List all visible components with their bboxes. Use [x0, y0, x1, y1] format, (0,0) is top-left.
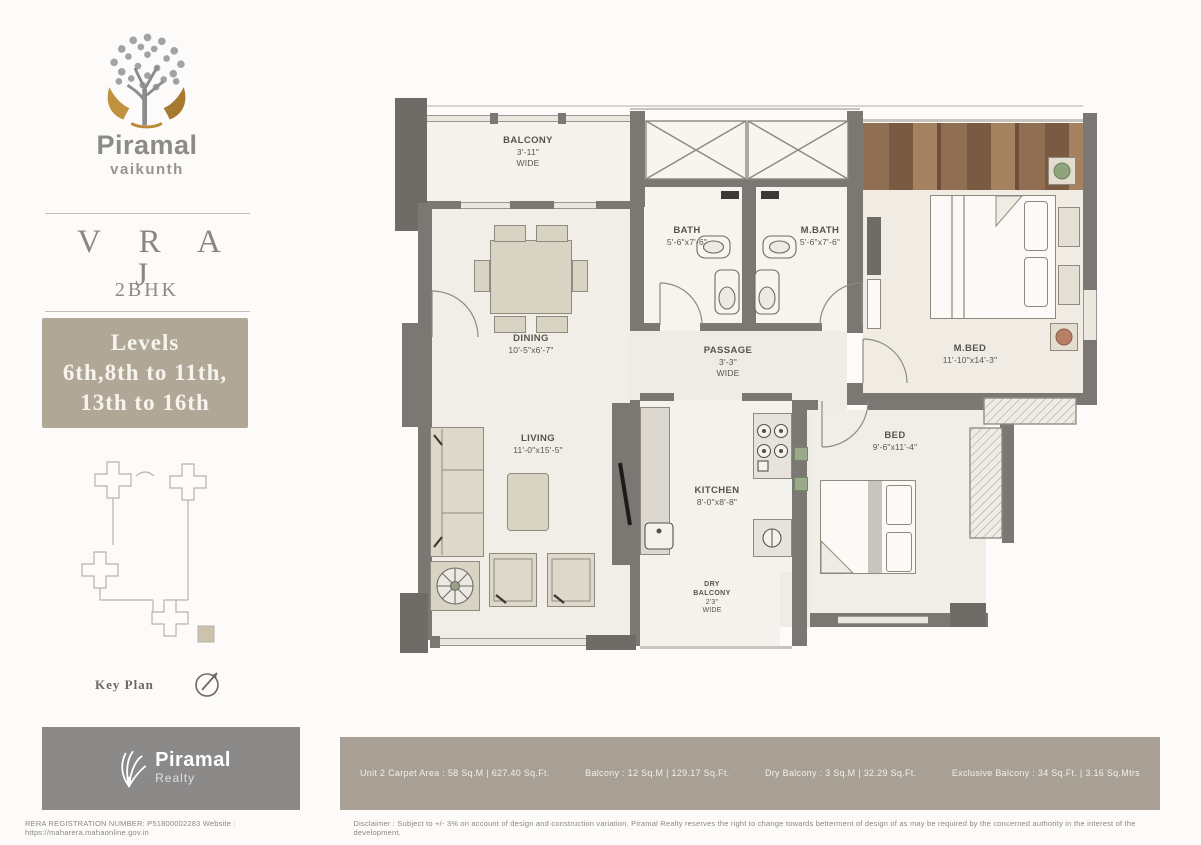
key-plan-label: Key Plan — [95, 678, 154, 691]
dining-table — [490, 240, 572, 314]
tree-icon — [95, 26, 200, 131]
wall-segment — [510, 201, 554, 209]
piramal-realty-logo-box: Piramal Realty — [42, 727, 300, 810]
wall-segment — [700, 323, 822, 331]
room-label-dining: DINING10'-5"x6'-7" — [508, 333, 553, 356]
master-bed-window — [1083, 290, 1097, 340]
levels-line3: 13th to 16th — [42, 388, 248, 418]
area-segment: Dry Balcony : 3 Sq.M | 32.29 Sq.Ft. — [765, 768, 916, 779]
brand-name: Piramal — [42, 132, 252, 159]
divider-top — [45, 213, 250, 214]
area-segment: Unit 2 Carpet Area : 58 Sq.M | 627.40 Sq… — [360, 768, 550, 779]
room-label-kitchen: KITCHEN8'-0"x8'-8" — [694, 485, 739, 508]
armchair — [547, 553, 595, 607]
pillow — [886, 532, 912, 572]
duct-top-line — [630, 108, 860, 110]
wall-segment — [430, 636, 440, 648]
room-label-passage: PASSAGE3'-3"WIDE — [704, 345, 753, 379]
brochure-page: Piramal vaikunth V R A J 2BHK Levels 6th… — [0, 0, 1201, 845]
floor-plan: BALCONY3'-11"WIDE BATH5'-6"x7'-6" M.BATH… — [390, 95, 1100, 685]
nightstand — [1058, 207, 1080, 247]
bath-divider-wall — [742, 185, 756, 331]
kitchen-living-divider — [612, 403, 640, 565]
room-label-bed: BED9'-6"x11'-4" — [873, 430, 918, 453]
pillow — [1024, 257, 1048, 307]
bed-window — [838, 616, 928, 624]
piramal-vaikunth-tree-logo — [95, 26, 200, 131]
bed-runner — [868, 481, 882, 573]
realty-brand-sub: Realty — [155, 770, 231, 787]
bath-floor — [630, 185, 847, 331]
dining-chair — [536, 316, 568, 333]
bath-left-wall — [630, 179, 644, 331]
bed-top-wall — [868, 400, 984, 410]
wall-segment — [596, 201, 630, 209]
plan-type: 2BHK — [42, 280, 252, 300]
divider-bottom — [45, 311, 250, 312]
utility-fixture — [794, 477, 808, 491]
nightstand — [1058, 265, 1080, 305]
wall-segment — [490, 113, 498, 124]
dining-chair — [572, 260, 588, 292]
balcony-window — [427, 115, 630, 122]
room-label-dry-balcony: DRYBALCONY 2'3"WIDE — [693, 581, 730, 616]
coffee-table — [507, 473, 549, 531]
realty-brand-name: Piramal — [155, 750, 231, 770]
wall-segment — [558, 113, 566, 124]
wall-segment — [742, 393, 792, 401]
wall-segment — [1000, 405, 1014, 433]
levels-box: Levels 6th,8th to 11th, 13th to 16th — [42, 318, 248, 428]
side-table — [430, 561, 480, 611]
wall-segment — [586, 635, 636, 650]
kitchen-right-wall — [792, 400, 807, 646]
room-label-bath: BATH5'-6"x7'-6" — [667, 225, 707, 248]
wall-segment — [400, 593, 428, 653]
dining-chair — [536, 225, 568, 242]
disclaimer-text: Disclaimer : Subject to +/- 3% on accoun… — [354, 819, 1165, 837]
kitchen-stove — [753, 413, 792, 479]
key-plan-drawing — [58, 450, 233, 665]
master-bed-dresser — [867, 279, 881, 329]
area-summary-bar: Unit 2 Carpet Area : 58 Sq.M | 627.40 Sq… — [340, 737, 1160, 810]
realty-hand-icon — [111, 747, 147, 791]
dining-chair — [494, 225, 526, 242]
wall-segment — [640, 393, 674, 401]
north-compass-icon — [193, 666, 225, 700]
kitchen-counter — [640, 407, 670, 555]
room-label-balcony: BALCONY3'-11"WIDE — [503, 135, 553, 169]
levels-line2: 6th,8th to 11th, — [42, 358, 248, 388]
wall-segment — [950, 603, 986, 627]
wall-segment — [427, 201, 461, 209]
planter — [1050, 323, 1078, 351]
pillow — [886, 485, 912, 525]
slab-edge-line — [427, 105, 1083, 107]
wall-segment — [402, 323, 418, 427]
utility-fixture — [794, 447, 808, 461]
golden-hand-right — [164, 87, 186, 119]
sofa — [430, 427, 484, 557]
wall-segment — [644, 323, 660, 331]
master-bed-right-wall — [1083, 113, 1097, 405]
bed-right-wall — [1002, 431, 1014, 543]
golden-hand-left — [108, 87, 130, 119]
pillow — [1024, 201, 1048, 251]
armchair — [489, 553, 537, 607]
legal-row: RERA REGISTRATION NUMBER: P51800002283 W… — [25, 819, 1165, 837]
master-bed-left-wall — [847, 111, 863, 333]
brand-subtitle: vaikunth — [42, 162, 252, 177]
living-window — [430, 638, 612, 646]
dining-chair — [494, 316, 526, 333]
room-label-mbed: M.BED11'-10"x14'-3" — [943, 343, 997, 366]
deck-planter — [1048, 157, 1076, 185]
master-bed-cabinet — [867, 217, 881, 275]
deck-edge-line — [863, 119, 1083, 122]
area-segment: Exclusive Balcony : 34 Sq.Ft. | 3.16 Sq.… — [952, 768, 1140, 779]
area-segment: Balcony : 12 Sq.M | 129.17 Sq.Ft. — [585, 768, 729, 779]
dining-chair — [474, 260, 490, 292]
levels-line1: Levels — [42, 328, 248, 358]
room-label-living: LIVING11'-0"x15'-5" — [513, 433, 563, 456]
rera-registration-text: RERA REGISTRATION NUMBER: P51800002283 W… — [25, 819, 354, 837]
key-plan-highlight — [198, 626, 214, 642]
kitchen-appliance — [753, 519, 792, 557]
dry-balcony-edge — [640, 646, 792, 649]
room-label-mbath: M.BATH5'-6"x7'-6" — [800, 225, 840, 248]
